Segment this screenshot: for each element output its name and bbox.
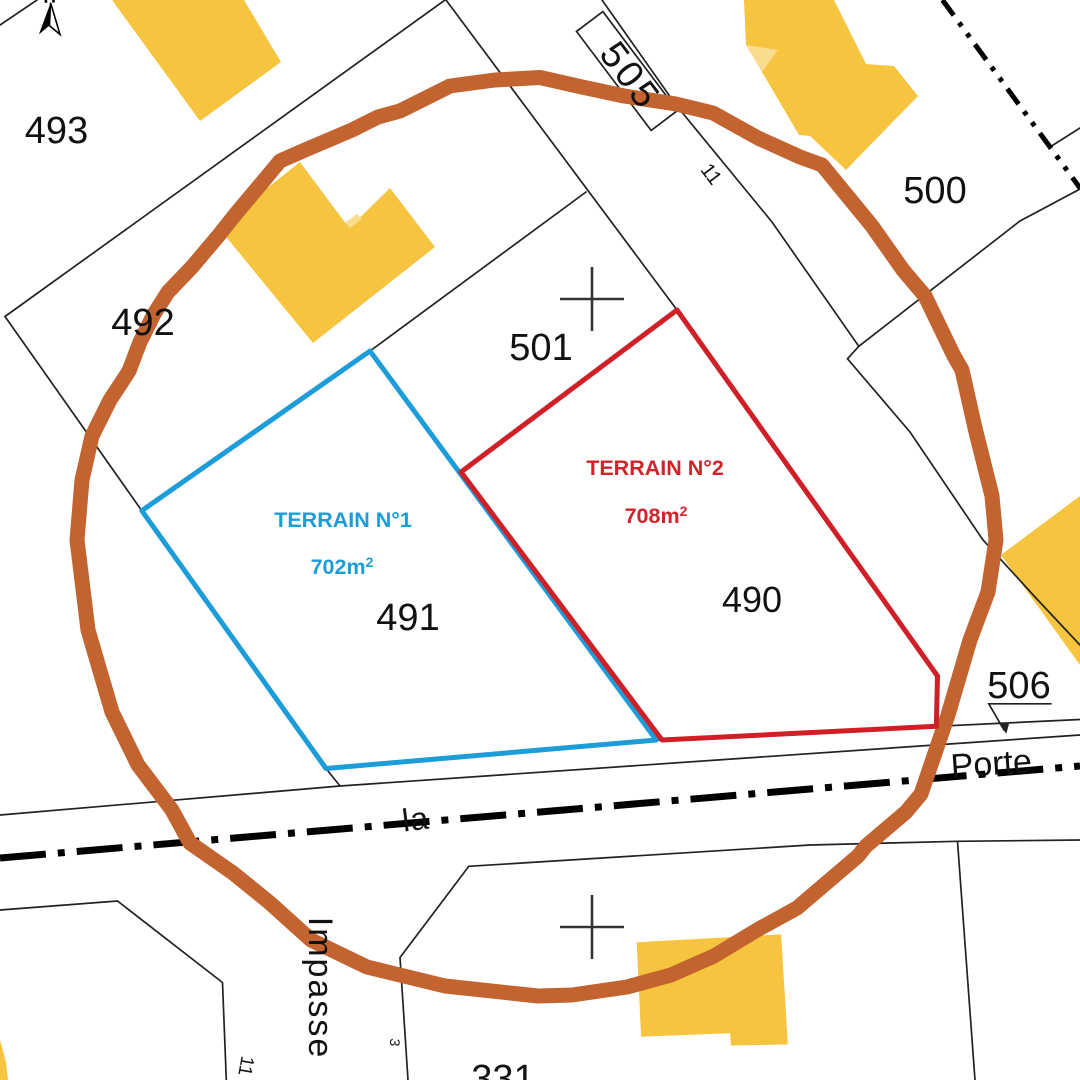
svg-text:TERRAIN N°2: TERRAIN N°2 bbox=[586, 456, 724, 480]
svg-text:493: 493 bbox=[25, 110, 88, 152]
svg-text:la: la bbox=[400, 800, 431, 839]
svg-text:708m2: 708m2 bbox=[625, 503, 688, 528]
svg-text:490: 490 bbox=[722, 579, 782, 620]
svg-text:TERRAIN N°1: TERRAIN N°1 bbox=[274, 508, 412, 532]
svg-text:3: 3 bbox=[387, 1038, 404, 1047]
svg-text:11: 11 bbox=[233, 1054, 257, 1077]
svg-text:491: 491 bbox=[376, 597, 439, 639]
svg-text:Impasse: Impasse bbox=[301, 917, 339, 1060]
svg-text:11: 11 bbox=[696, 159, 726, 189]
svg-text:Porte: Porte bbox=[949, 742, 1033, 786]
svg-text:500: 500 bbox=[903, 170, 966, 212]
svg-text:506: 506 bbox=[987, 665, 1050, 707]
svg-text:331: 331 bbox=[471, 1058, 534, 1080]
svg-text:492: 492 bbox=[111, 302, 174, 344]
svg-text:501: 501 bbox=[509, 327, 572, 369]
svg-text:702m2: 702m2 bbox=[311, 554, 374, 579]
